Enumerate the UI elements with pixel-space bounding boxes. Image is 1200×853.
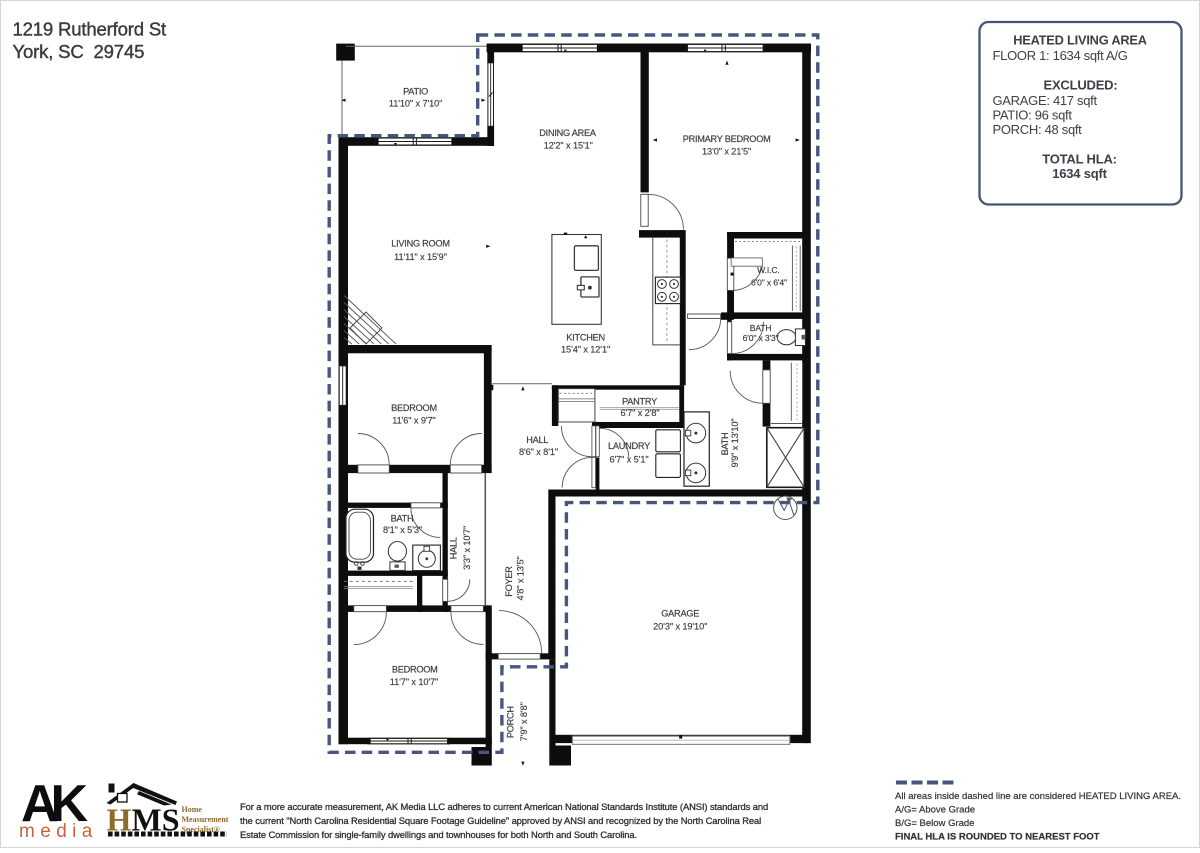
svg-text:1634 sqft: 1634 sqft [1052, 166, 1107, 181]
svg-text:All areas inside dashed line a: All areas inside dashed line are conside… [895, 791, 1181, 802]
svg-text:6'0" x 6'4": 6'0" x 6'4" [751, 278, 787, 288]
svg-text:8'1" x 5'3": 8'1" x 5'3" [383, 525, 422, 535]
svg-text:FOYER: FOYER [504, 566, 514, 597]
svg-text:HEATED LIVING AREA: HEATED LIVING AREA [1013, 33, 1147, 48]
svg-text:BATH: BATH [720, 433, 730, 456]
svg-text:W.I.C.: W.I.C. [757, 265, 780, 275]
svg-text:6'7" x 5'1": 6'7" x 5'1" [609, 455, 648, 465]
svg-text:GARAGE: 417 sqft: GARAGE: 417 sqft [993, 93, 1098, 108]
svg-text:1219 Rutherford St: 1219 Rutherford St [13, 19, 168, 40]
svg-text:Measurement: Measurement [182, 815, 229, 824]
svg-text:FINAL HLA IS ROUNDED TO NEARES: FINAL HLA IS ROUNDED TO NEAREST FOOT [895, 832, 1100, 843]
svg-text:BEDROOM: BEDROOM [392, 665, 438, 675]
svg-text:15'4" x 12'1": 15'4" x 12'1" [561, 345, 610, 355]
svg-text:PRIMARY BEDROOM: PRIMARY BEDROOM [683, 134, 771, 144]
svg-text:9'9" x 13'10": 9'9" x 13'10" [730, 418, 740, 467]
svg-text:Estate Commission for single-f: Estate Commission for single-family dwel… [240, 829, 637, 840]
svg-text:EXCLUDED:: EXCLUDED: [1043, 78, 1117, 93]
svg-text:13'0" x 21'5": 13'0" x 21'5" [702, 147, 751, 157]
svg-text:11'7" x 10'7": 11'7" x 10'7" [390, 677, 438, 687]
svg-text:DINING AREA: DINING AREA [539, 128, 597, 138]
svg-text:GARAGE: GARAGE [661, 609, 699, 619]
svg-text:20'3" x 19'10": 20'3" x 19'10" [653, 622, 707, 632]
svg-text:PANTRY: PANTRY [622, 397, 657, 407]
svg-text:11'6" x 9'7": 11'6" x 9'7" [392, 416, 435, 426]
svg-text:the current "North Carolina Re: the current "North Carolina Residential … [240, 815, 761, 826]
svg-text:PORCH: 48 sqft: PORCH: 48 sqft [993, 122, 1083, 137]
svg-text:LIVING ROOM: LIVING ROOM [391, 239, 450, 249]
svg-text:HALL: HALL [526, 435, 548, 445]
svg-text:For a more accurate measuremen: For a more accurate measurement, AK Medi… [240, 801, 768, 812]
svg-text:FLOOR 1: 1634 sqft A/G: FLOOR 1: 1634 sqft A/G [993, 48, 1128, 63]
svg-text:6'7" x 2'8": 6'7" x 2'8" [620, 408, 659, 418]
svg-text:4'8" x 13'5": 4'8" x 13'5" [516, 556, 526, 600]
svg-text:media: media [19, 821, 98, 842]
svg-text:B/G= Below Grade: B/G= Below Grade [895, 818, 974, 829]
svg-text:BATH: BATH [750, 323, 772, 333]
svg-text:Home: Home [182, 805, 203, 814]
svg-text:A/G= Above Grade: A/G= Above Grade [895, 805, 975, 816]
svg-text:PATIO: 96 sqft: PATIO: 96 sqft [993, 108, 1073, 123]
svg-text:12'2" x 15'1": 12'2" x 15'1" [544, 141, 593, 151]
svg-text:KITCHEN: KITCHEN [566, 333, 605, 343]
svg-text:PATIO: PATIO [403, 87, 428, 97]
svg-text:3'3" x 10'7": 3'3" x 10'7" [462, 526, 472, 570]
svg-text:PORCH: PORCH [506, 706, 516, 738]
svg-text:11'11" x 15'9": 11'11" x 15'9" [394, 252, 447, 262]
svg-text:BATH: BATH [391, 514, 414, 524]
svg-text:8'6" x 8'1": 8'6" x 8'1" [519, 447, 558, 457]
svg-text:York, SC 29745: York, SC 29745 [13, 41, 145, 62]
svg-text:TOTAL HLA:: TOTAL HLA: [1042, 152, 1117, 167]
svg-text:11'10" x 7'10": 11'10" x 7'10" [389, 99, 442, 109]
svg-text:BEDROOM: BEDROOM [391, 403, 437, 413]
svg-text:HALL: HALL [449, 537, 459, 559]
svg-text:7'9" x 8'8": 7'9" x 8'8" [519, 702, 529, 741]
svg-text:6'0" x 3'3": 6'0" x 3'3" [743, 333, 779, 343]
svg-text:LAUNDRY: LAUNDRY [608, 441, 650, 451]
